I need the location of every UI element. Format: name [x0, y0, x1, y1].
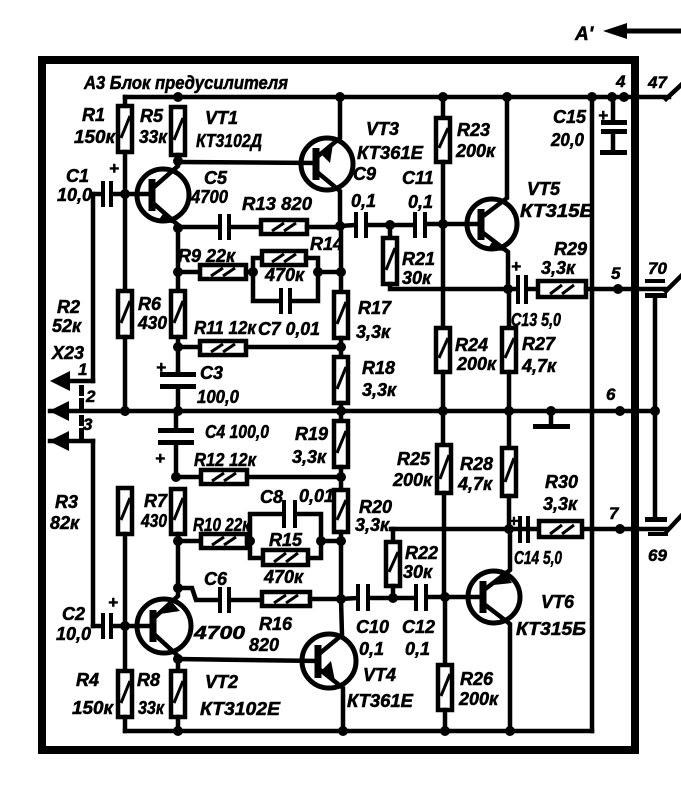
- svg-text:R2: R2: [57, 297, 80, 317]
- svg-text:КТ315Б: КТ315Б: [520, 201, 594, 221]
- svg-text:3,3к: 3,3к: [543, 494, 578, 514]
- svg-text:R18: R18: [362, 358, 395, 378]
- svg-text:52к: 52к: [52, 316, 82, 336]
- svg-text:47: 47: [647, 73, 668, 92]
- svg-text:R17: R17: [358, 298, 392, 318]
- svg-text:VT3: VT3: [366, 119, 399, 139]
- svg-text:А': А': [574, 24, 595, 45]
- svg-text:+: +: [156, 358, 166, 377]
- svg-text:+: +: [598, 106, 608, 125]
- svg-text:33к: 33к: [138, 698, 165, 718]
- svg-text:2: 2: [85, 387, 96, 406]
- svg-text:R30: R30: [545, 472, 578, 492]
- svg-text:R13 820: R13 820: [242, 194, 312, 214]
- svg-text:200к: 200к: [458, 689, 499, 709]
- svg-text:+: +: [109, 159, 119, 178]
- svg-text:R7: R7: [144, 491, 168, 511]
- svg-text:А3 Блок предусилителя: А3 Блок предусилителя: [83, 73, 288, 93]
- svg-text:4,7к: 4,7к: [457, 474, 493, 494]
- svg-text:0,1: 0,1: [408, 192, 433, 212]
- svg-text:R16: R16: [259, 614, 293, 634]
- svg-text:R3: R3: [55, 492, 78, 512]
- svg-text:R28: R28: [460, 454, 493, 474]
- svg-text:R8: R8: [137, 670, 160, 690]
- svg-text:VT1: VT1: [205, 108, 238, 128]
- svg-text:R6: R6: [138, 294, 162, 314]
- svg-text:R22: R22: [405, 543, 438, 563]
- svg-text:3,3к: 3,3к: [362, 380, 397, 400]
- svg-text:150к: 150к: [72, 698, 114, 718]
- svg-text:R14: R14: [310, 234, 343, 254]
- svg-text:+: +: [155, 449, 165, 468]
- svg-text:R27: R27: [522, 334, 556, 354]
- svg-text:R15: R15: [269, 530, 303, 550]
- svg-text:3,3к: 3,3к: [292, 447, 327, 467]
- svg-text:КТ361Е: КТ361Е: [357, 143, 424, 163]
- svg-text:200к: 200к: [392, 470, 433, 490]
- svg-text:VТ6: VТ6: [541, 592, 575, 612]
- svg-text:C11: C11: [402, 168, 434, 188]
- svg-text:С13 5,0: С13 5,0: [511, 310, 561, 330]
- svg-text:R23: R23: [457, 120, 490, 140]
- svg-text:20,0: 20,0: [550, 130, 584, 150]
- svg-text:КТ315Б: КТ315Б: [516, 619, 586, 639]
- svg-text:C9: C9: [353, 164, 376, 184]
- svg-text:5: 5: [611, 264, 621, 283]
- svg-text:VT4: VT4: [363, 665, 396, 685]
- svg-text:R19: R19: [295, 424, 328, 444]
- svg-text:R10 22к: R10 22к: [193, 515, 251, 535]
- svg-text:C5: C5: [204, 168, 228, 188]
- svg-text:С12: С12: [402, 617, 435, 637]
- svg-text:R1: R1: [82, 105, 105, 125]
- svg-text:0,01: 0,01: [299, 486, 334, 506]
- svg-text:C15: C15: [553, 107, 587, 127]
- svg-text:R11 12к: R11 12к: [194, 318, 257, 338]
- svg-text:C3: C3: [200, 363, 223, 383]
- svg-text:КТ361Е: КТ361Е: [347, 691, 414, 711]
- svg-text:82к: 82к: [50, 513, 80, 533]
- svg-text:КТ3102Е: КТ3102Е: [200, 699, 281, 719]
- svg-text:4700: 4700: [190, 187, 228, 207]
- svg-text:3,3к: 3,3к: [541, 258, 576, 278]
- svg-text:200к: 200к: [456, 354, 497, 374]
- svg-text:30к: 30к: [403, 562, 433, 582]
- svg-text:10,0: 10,0: [56, 624, 91, 644]
- svg-text:КТ3102Д: КТ3102Д: [196, 131, 262, 151]
- svg-text:69: 69: [648, 546, 667, 565]
- svg-text:0,1: 0,1: [405, 639, 430, 659]
- svg-text:10,0: 10,0: [57, 185, 92, 205]
- svg-text:R9 22к: R9 22к: [178, 246, 236, 266]
- svg-text:200к: 200к: [455, 141, 496, 161]
- svg-text:C1: C1: [66, 166, 89, 186]
- svg-text:6: 6: [606, 385, 616, 404]
- svg-text:3: 3: [83, 415, 93, 434]
- svg-text:33к: 33к: [139, 127, 168, 147]
- svg-text:3,3к: 3,3к: [356, 322, 391, 342]
- svg-text:820: 820: [249, 635, 279, 655]
- svg-text:1: 1: [78, 360, 87, 379]
- svg-text:R21: R21: [402, 249, 435, 269]
- svg-text:3,3к: 3,3к: [355, 515, 390, 535]
- svg-text:+: +: [511, 257, 521, 276]
- svg-text:430: 430: [137, 313, 167, 333]
- svg-text:R12 12к: R12 12к: [194, 450, 257, 470]
- svg-text:0,1: 0,1: [359, 639, 384, 659]
- svg-text:7: 7: [609, 504, 620, 523]
- svg-text:C8: C8: [260, 487, 283, 507]
- svg-text:4700: 4700: [193, 623, 245, 643]
- svg-text:150к: 150к: [74, 127, 116, 147]
- svg-text:С7 0,01: С7 0,01: [258, 319, 320, 339]
- svg-text:0,1: 0,1: [351, 191, 376, 211]
- svg-text:VT2: VT2: [205, 672, 238, 692]
- svg-text:R29: R29: [554, 239, 587, 259]
- svg-text:R25: R25: [397, 449, 431, 469]
- svg-text:VT5: VT5: [527, 179, 561, 199]
- svg-text:4,7к: 4,7к: [521, 356, 557, 376]
- svg-text:30к: 30к: [402, 268, 432, 288]
- svg-text:С14 5,0: С14 5,0: [514, 548, 562, 568]
- svg-text:R5: R5: [140, 106, 164, 126]
- svg-text:470к: 470к: [264, 265, 305, 285]
- svg-text:100,0: 100,0: [197, 387, 239, 407]
- svg-text:R26: R26: [460, 669, 494, 689]
- svg-text:4: 4: [615, 72, 626, 91]
- svg-text:C4 100,0: C4 100,0: [205, 422, 269, 442]
- svg-text:+: +: [108, 593, 118, 612]
- svg-text:С6: С6: [204, 569, 228, 589]
- svg-text:R24: R24: [455, 335, 488, 355]
- svg-text:470к: 470к: [263, 567, 304, 587]
- svg-text:430: 430: [140, 511, 167, 531]
- svg-text:70: 70: [648, 259, 667, 278]
- svg-text:R4: R4: [76, 670, 99, 690]
- svg-text:R20: R20: [359, 497, 392, 517]
- svg-text:C2: C2: [62, 604, 85, 624]
- svg-text:С10: С10: [356, 617, 389, 637]
